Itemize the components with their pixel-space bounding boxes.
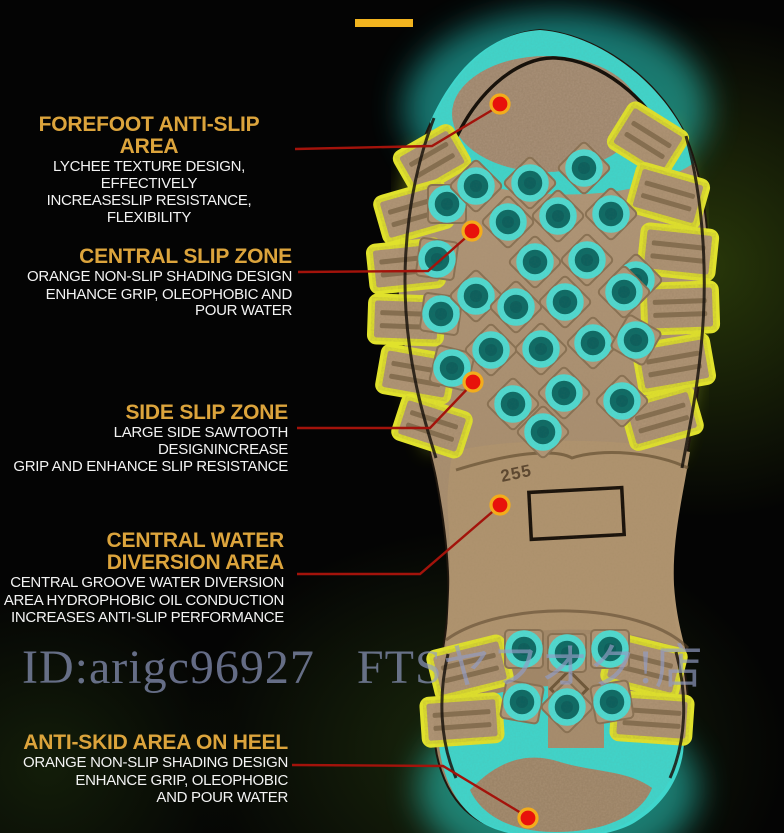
callout-dot xyxy=(463,222,481,240)
watermark: ID:arigc96927FTSヤフオク!店 xyxy=(22,627,704,697)
callout-body-line: ENHANCE GRIP, OLEOPHOBIC AND POUR WATER xyxy=(0,287,292,320)
watermark-id: ID:arigc96927 xyxy=(22,641,315,694)
callout-body-line: ORANGE NON-SLIP SHADING DESIGN xyxy=(0,269,292,286)
callout-heel: ANTI-SKID AREA ON HEEL ORANGE NON-SLIP S… xyxy=(0,732,288,807)
callout-body-line: INCREASESLIP RESISTANCE, FLEXIBILITY xyxy=(8,193,290,226)
callout-dot xyxy=(491,496,509,514)
product-infographic: 255 FOREFOOT ANTI-SLIP AREA LYCHEE TEXTU… xyxy=(0,0,784,833)
callout-body-line: LYCHEE TEXTURE DESIGN, EFFECTIVELY xyxy=(8,159,290,192)
callout-central-slip: CENTRAL SLIP ZONE ORANGE NON-SLIP SHADIN… xyxy=(0,246,292,320)
callout-water-diversion: CENTRAL WATER DIVERSION AREA CENTRAL GRO… xyxy=(0,530,284,627)
watermark-store: FTSヤフオク!店 xyxy=(357,641,704,694)
callout-body-line: GRIP AND ENHANCE SLIP RESISTANCE xyxy=(0,459,288,476)
callout-forefoot: FOREFOOT ANTI-SLIP AREA LYCHEE TEXTURE D… xyxy=(8,114,290,226)
callout-body-line: AREA HYDROPHOBIC OIL CONDUCTION xyxy=(0,593,284,610)
callout-side-slip: SIDE SLIP ZONE LARGE SIDE SAWTOOTH DESIG… xyxy=(0,402,288,476)
callout-title: DIVERSION AREA xyxy=(0,552,284,574)
callout-body-line: CENTRAL GROOVE WATER DIVERSION xyxy=(0,575,284,592)
callout-dot xyxy=(491,95,509,113)
callout-dot xyxy=(519,809,537,827)
callout-body-line: INCREASES ANTI-SLIP PERFORMANCE xyxy=(0,610,284,627)
callout-body-line: LARGE SIDE SAWTOOTH DESIGNINCREASE xyxy=(0,425,288,458)
callout-dot xyxy=(464,373,482,391)
sole-texture xyxy=(398,30,709,833)
callout-title: CENTRAL SLIP ZONE xyxy=(0,246,292,268)
callout-title: ANTI-SKID AREA ON HEEL xyxy=(0,732,288,754)
callout-title: SIDE SLIP ZONE xyxy=(0,402,288,424)
callout-title: CENTRAL WATER xyxy=(0,530,284,552)
callout-body-line: ORANGE NON-SLIP SHADING DESIGN xyxy=(0,755,288,772)
callout-body-line: AND POUR WATER xyxy=(0,790,288,807)
callout-body-line: ENHANCE GRIP, OLEOPHOBIC xyxy=(0,773,288,790)
callout-title: FOREFOOT ANTI-SLIP AREA xyxy=(8,114,290,158)
